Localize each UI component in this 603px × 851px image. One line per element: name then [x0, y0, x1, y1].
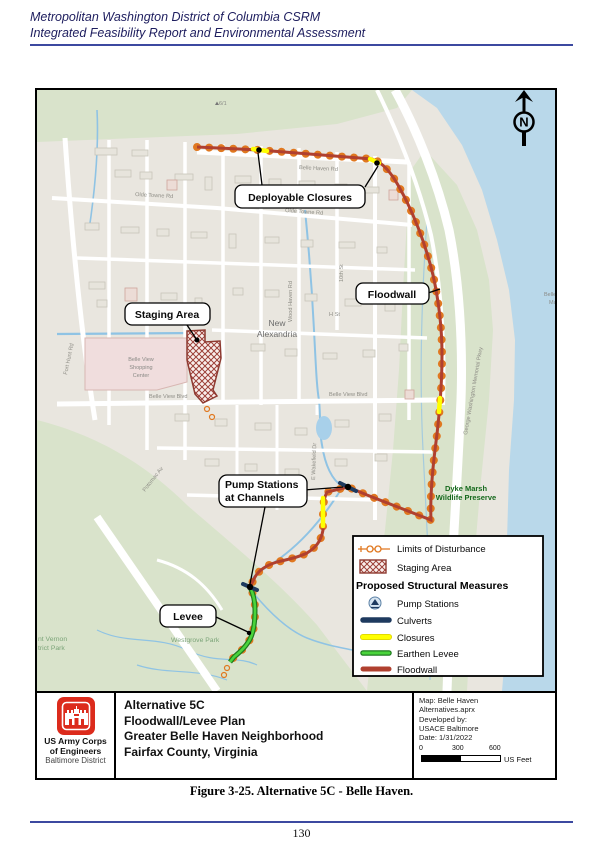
pond — [316, 416, 332, 440]
map-title-line2: Floodwall/Levee Plan — [124, 714, 404, 730]
scale-tick-0: 0 — [419, 745, 423, 752]
figure-frame: Belle View Shopping Center Belle Haven R… — [35, 88, 557, 780]
callout-pump-stations: Pump Stations — [225, 479, 299, 491]
map-title-cell: Alternative 5C Floodwall/Levee Plan Grea… — [116, 693, 412, 778]
legend-lod-symbol — [367, 546, 373, 552]
map-meta-cell: Map: Belle Haven Alternatives.aprx Devel… — [412, 693, 555, 778]
street-label: Belle View Blvd — [149, 394, 187, 400]
map-title-line3: Greater Belle Haven Neighborhood — [124, 729, 404, 745]
street-label: Belle View Blvd — [329, 392, 367, 398]
place-westgrove-park: Westgrove Park — [171, 637, 220, 644]
scale-bar-graphic — [421, 755, 501, 762]
map-title-block: US Army Corps of Engineers Baltimore Dis… — [37, 691, 555, 778]
place-dyke-marsh: Dyke Marsh — [445, 484, 488, 493]
org-district: Baltimore District — [37, 756, 114, 766]
place-marina: Belle — [544, 292, 555, 298]
callout-staging-area: Staging Area — [135, 309, 200, 321]
legend-pump-label: Pump Stations — [397, 599, 459, 610]
header-line-1: Metropolitan Washington District of Colu… — [30, 9, 365, 25]
figure-caption: Figure 3-25. Alternative 5C - Belle Have… — [0, 784, 603, 799]
street-label: 10th St — [339, 264, 345, 282]
legend-closures-label: Closures — [397, 633, 435, 644]
svg-text:at Channels: at Channels — [225, 492, 285, 504]
footer-rule — [30, 821, 573, 823]
street-label: H St — [329, 312, 340, 318]
shopping-center-label: Belle View — [128, 357, 154, 363]
street-label: Wood Haven Rd — [288, 281, 294, 322]
pump-station-dot — [345, 484, 351, 490]
north-letter: N — [519, 115, 528, 130]
map-legend: Limits of Disturbance Staging Area Propo… — [353, 536, 543, 676]
report-header: Metropolitan Washington District of Colu… — [30, 9, 365, 41]
legend-group-title: Proposed Structural Measures — [356, 580, 508, 592]
page-number: 130 — [0, 826, 603, 841]
callout-levee: Levee — [173, 611, 203, 623]
meta-developed-by: Developed by: — [419, 715, 550, 724]
spot-elevation-marker: 6/1 — [219, 101, 227, 107]
meta-date: Date: 1/31/2022 — [419, 733, 550, 742]
legend-levee-label: Earthen Levee — [397, 649, 459, 660]
staging-anchor-dot — [195, 338, 200, 343]
svg-text:Shopping: Shopping — [129, 365, 152, 371]
legend-lod-label: Limits of Disturbance — [397, 544, 486, 555]
callout-deployable-closures: Deployable Closures — [248, 192, 352, 204]
header-line-2: Integrated Feasibility Report and Enviro… — [30, 25, 365, 41]
svg-text:Center: Center — [133, 373, 150, 379]
place-new-alexandria: New — [268, 318, 286, 328]
org-name-line2: of Engineers — [37, 747, 114, 757]
callout-floodwall: Floodwall — [368, 289, 416, 301]
map-title-line1: Alternative 5C — [124, 698, 404, 714]
scale-tick-300: 300 — [452, 745, 464, 752]
closure-junction-dot — [256, 147, 262, 153]
legend-floodwall-label: Floodwall — [397, 665, 437, 676]
map: Belle View Shopping Center Belle Haven R… — [37, 90, 555, 691]
svg-text:Alexandria: Alexandria — [257, 329, 297, 339]
scale-unit: US Feet — [504, 755, 532, 764]
pump-station-dot — [247, 584, 253, 590]
place-mount-vernon-park: nt Vernon — [38, 636, 67, 643]
header-rule — [30, 44, 573, 46]
svg-text:Wildlife Preserve: Wildlife Preserve — [436, 493, 496, 502]
svg-text:trict Park: trict Park — [38, 645, 65, 652]
levee-anchor-dot — [247, 631, 251, 635]
usace-logo-cell: US Army Corps of Engineers Baltimore Dis… — [37, 693, 116, 778]
svg-text:Ma: Ma — [549, 300, 555, 306]
meta-map-name: Map: Belle Haven — [419, 696, 550, 705]
legend-culverts-label: Culverts — [397, 616, 432, 627]
scale-bar: 0 300 600 US Feet — [419, 745, 552, 775]
scale-tick-600: 600 — [489, 745, 501, 752]
map-title-line4: Fairfax County, Virginia — [124, 745, 404, 761]
legend-staging-label: Staging Area — [397, 563, 452, 574]
closure-junction-dot — [374, 160, 380, 166]
usace-castle-logo — [57, 697, 95, 735]
